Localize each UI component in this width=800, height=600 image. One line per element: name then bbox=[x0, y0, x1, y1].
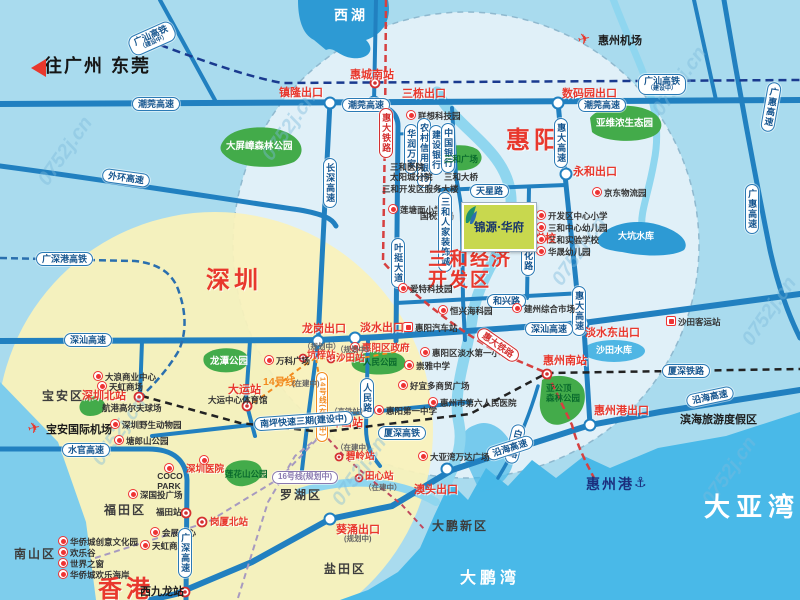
jianzhou-market: 建州综合市场 bbox=[512, 303, 575, 315]
tianhong-mall-1: 天虹商场 bbox=[97, 381, 143, 393]
dot-icon bbox=[536, 234, 546, 244]
dot-icon bbox=[418, 451, 428, 461]
exit-zhenlong: 镇隆出口 bbox=[279, 87, 323, 99]
station-tianxin: 田心站 bbox=[365, 472, 394, 483]
rail-label-xiashen-2: 厦深铁路 bbox=[662, 364, 710, 378]
sanhe-exp-school: 三和实验学校 bbox=[536, 234, 599, 246]
station-kengzi: 坑梓站 bbox=[307, 351, 336, 362]
road-label-shuiguan: 水官高速 bbox=[62, 443, 110, 457]
anchor-icon: ⚓ bbox=[634, 475, 649, 491]
exit-danshui: 淡水出口 bbox=[360, 322, 404, 334]
station-shatian: 沙田站 bbox=[336, 354, 365, 365]
rail-label-guangshengang: 广深港高铁 bbox=[36, 252, 93, 266]
dakeng-reservoir: 大坑水库 bbox=[618, 231, 654, 241]
dot-icon bbox=[406, 110, 416, 120]
huasheng-kindergarten: 华晟幼儿园 bbox=[536, 246, 591, 258]
haoyiduo-plaza: 好宜多商贸广场 bbox=[398, 380, 470, 392]
dot-icon bbox=[264, 355, 274, 365]
dot-icon bbox=[140, 540, 150, 550]
shatian-bus-station: 沙田客运站 bbox=[666, 316, 721, 328]
binhai-resort: 滨海旅游度假区 bbox=[680, 414, 757, 426]
longtan-park: 龙潭公园 bbox=[210, 357, 248, 368]
station-huizhounan: 惠州南站 bbox=[543, 355, 587, 367]
project-logo-icon bbox=[464, 205, 478, 225]
safari-park: 深圳野生动物园 bbox=[110, 419, 182, 431]
wanda-plaza: 大亚湾万达广场 bbox=[418, 451, 490, 463]
happy-valley: 欢乐谷 bbox=[58, 547, 96, 559]
station-gangxiabei: 岗厦北站 bbox=[210, 518, 248, 529]
road-label-guangshen: 广深高速 bbox=[178, 528, 192, 578]
exit-aotou: 澳头出口 bbox=[414, 484, 458, 496]
dot-icon bbox=[536, 222, 546, 232]
poi-boc: 中国银行 bbox=[441, 123, 455, 173]
station-futian: 福田站 bbox=[156, 508, 182, 518]
baoan-district: 宝安区 bbox=[42, 390, 84, 403]
exit-danshuidong: 淡水东出口 bbox=[585, 327, 640, 339]
nanshan-district: 南山区 bbox=[14, 548, 56, 561]
sanhe-kindergarten: 三和中心幼儿园 bbox=[536, 222, 608, 234]
bus-icon bbox=[403, 322, 413, 332]
dot-icon bbox=[428, 397, 438, 407]
chongya-middle-school: 崇雅中学 bbox=[404, 360, 450, 372]
dot-icon bbox=[58, 536, 68, 546]
dot-icon bbox=[512, 303, 522, 313]
metro14-status: (在建中) bbox=[292, 380, 320, 388]
dot-icon bbox=[97, 381, 107, 391]
station-xijiulong: 西九龙站 bbox=[140, 586, 184, 598]
dot-icon bbox=[128, 489, 138, 499]
window-of-world: 世界之窗 bbox=[58, 558, 104, 570]
road-label-tianxing: 天星路 bbox=[470, 184, 509, 198]
dapeng-bay: 大鹏湾 bbox=[460, 570, 520, 588]
lenovo-tech-park: 联想科技园 bbox=[406, 110, 461, 122]
road-label-huida-hw-1: 惠大高速 bbox=[554, 118, 568, 168]
lianhuashan-park: 莲花山公园 bbox=[225, 470, 268, 480]
renmin-park: 人民公园 bbox=[363, 358, 397, 368]
metro14-label-h: 14号线 bbox=[263, 377, 296, 389]
oct-loft: 华侨城创意文化园 bbox=[58, 536, 138, 548]
rail-label-huida-1: 惠大铁路 bbox=[379, 108, 393, 158]
exit-huizhougang: 惠州港出口 bbox=[594, 405, 649, 417]
dot-icon bbox=[404, 360, 414, 370]
metro16-label: 16号线(规划中) bbox=[272, 471, 338, 484]
tanglangshan-park: 塘郎山公园 bbox=[114, 435, 169, 447]
road-label-guanghui-2: 广惠高速 bbox=[745, 184, 759, 234]
road-label-chaowan-3: 潮莞高速 bbox=[578, 98, 626, 112]
vanke-plaza: 万科广场 bbox=[264, 355, 310, 367]
dot-icon bbox=[420, 347, 430, 357]
bus-icon bbox=[666, 316, 676, 326]
road-label-chaowan: 潮莞高速 bbox=[132, 97, 180, 111]
location-map: 锦源·华府 往广州 东莞广汕高铁（建设中）潮莞高速外环高速大屏嶂森林公园广深港高… bbox=[0, 0, 800, 600]
dot-icon bbox=[398, 283, 408, 293]
dot-icon bbox=[374, 405, 384, 415]
west-lake-label: 西湖 bbox=[334, 8, 368, 24]
sanhe-plaza: 三和广场 bbox=[444, 155, 478, 165]
sanhe-hospital: 三和医院太阳城分院 bbox=[390, 163, 433, 182]
futian-district: 福田区 bbox=[104, 504, 146, 517]
daya-bay: 大亚湾 bbox=[704, 493, 800, 522]
kuichong-status: (规划中) bbox=[344, 535, 372, 543]
road-label-changshen: 长深高速 bbox=[323, 158, 337, 208]
road-label-yeting: 叶挺大道 bbox=[391, 238, 405, 288]
station-biling: 碧岭站 bbox=[346, 452, 375, 463]
road-label-shenshan-1: 深汕高速 bbox=[64, 333, 112, 347]
golf-course: 航港高尔夫球场 bbox=[102, 404, 162, 414]
dot-icon bbox=[388, 204, 398, 214]
shenguotou-plaza: 深国投广场 bbox=[128, 489, 183, 501]
dot-icon bbox=[438, 305, 448, 315]
exit-sandong: 三栋出口 bbox=[402, 88, 446, 100]
tianxin-status: （在建中） bbox=[364, 484, 402, 492]
aite-tech-park: 爱特科技园 bbox=[398, 283, 453, 295]
dot-icon bbox=[58, 547, 68, 557]
dot-icon bbox=[114, 435, 124, 445]
arrow-west-icon bbox=[22, 59, 46, 77]
sanhe-bridge: 三和大桥 bbox=[444, 173, 478, 183]
huiyang-bus-station: 惠阳汽车站 bbox=[403, 322, 458, 334]
park-yaweinong: 亚维浓生态园 bbox=[596, 119, 653, 130]
dayun-stadium: 大运中心体育馆 bbox=[208, 396, 268, 406]
dot-icon bbox=[536, 246, 546, 256]
baoan-airport: 宝安国际机场 bbox=[46, 424, 112, 436]
dot-icon bbox=[150, 527, 160, 537]
to-guangzhou-dongguan: 往广州 东莞 bbox=[44, 56, 151, 76]
dot-icon bbox=[93, 371, 103, 381]
dapeng-district: 大鹏新区 bbox=[432, 520, 488, 533]
devzone-primary-school: 开发区中心小学 bbox=[536, 210, 608, 222]
huizhou-airport: 惠州机场 bbox=[598, 35, 642, 47]
hengxing-park: 恒兴海科园 bbox=[438, 305, 493, 317]
huizhou-port: 惠州港 bbox=[586, 477, 634, 493]
sixth-people-hospital: 惠州市第六人民医院 bbox=[428, 397, 517, 409]
dot-icon bbox=[398, 380, 408, 390]
jd-logistics: 京东物流园 bbox=[592, 187, 647, 199]
region-shenzhen: 深圳 bbox=[206, 268, 262, 295]
park-yagongding: 亚公顶森林公园 bbox=[546, 384, 580, 403]
dot-icon bbox=[592, 187, 602, 197]
road-label-shenshan-2: 深汕高速 bbox=[525, 322, 573, 336]
exit-yonghe: 永和出口 bbox=[573, 166, 617, 178]
dot-icon bbox=[58, 569, 68, 579]
luohu-district: 罗湖区 bbox=[280, 489, 322, 502]
project-name: 锦源·华府 bbox=[474, 219, 524, 235]
station-huichengnan: 惠城南站 bbox=[350, 69, 394, 81]
exit-longgang: 龙岗出口 bbox=[302, 323, 346, 335]
rail-label-guangshan-2: 广汕高铁（建设中） bbox=[638, 74, 686, 95]
park-dapingzhang: 大屏嶂森林公园 bbox=[226, 142, 293, 153]
rail-label-xiashen-1: 厦深高铁 bbox=[378, 426, 426, 440]
dot-icon bbox=[536, 210, 546, 220]
shenzhen-hospital: 深圳医院 bbox=[186, 465, 224, 476]
shatian-reservoir: 沙田水库 bbox=[596, 345, 632, 355]
dot-icon bbox=[58, 558, 68, 568]
project-marker: 锦源·华府 bbox=[462, 203, 536, 251]
yantian-district: 盐田区 bbox=[324, 563, 366, 576]
